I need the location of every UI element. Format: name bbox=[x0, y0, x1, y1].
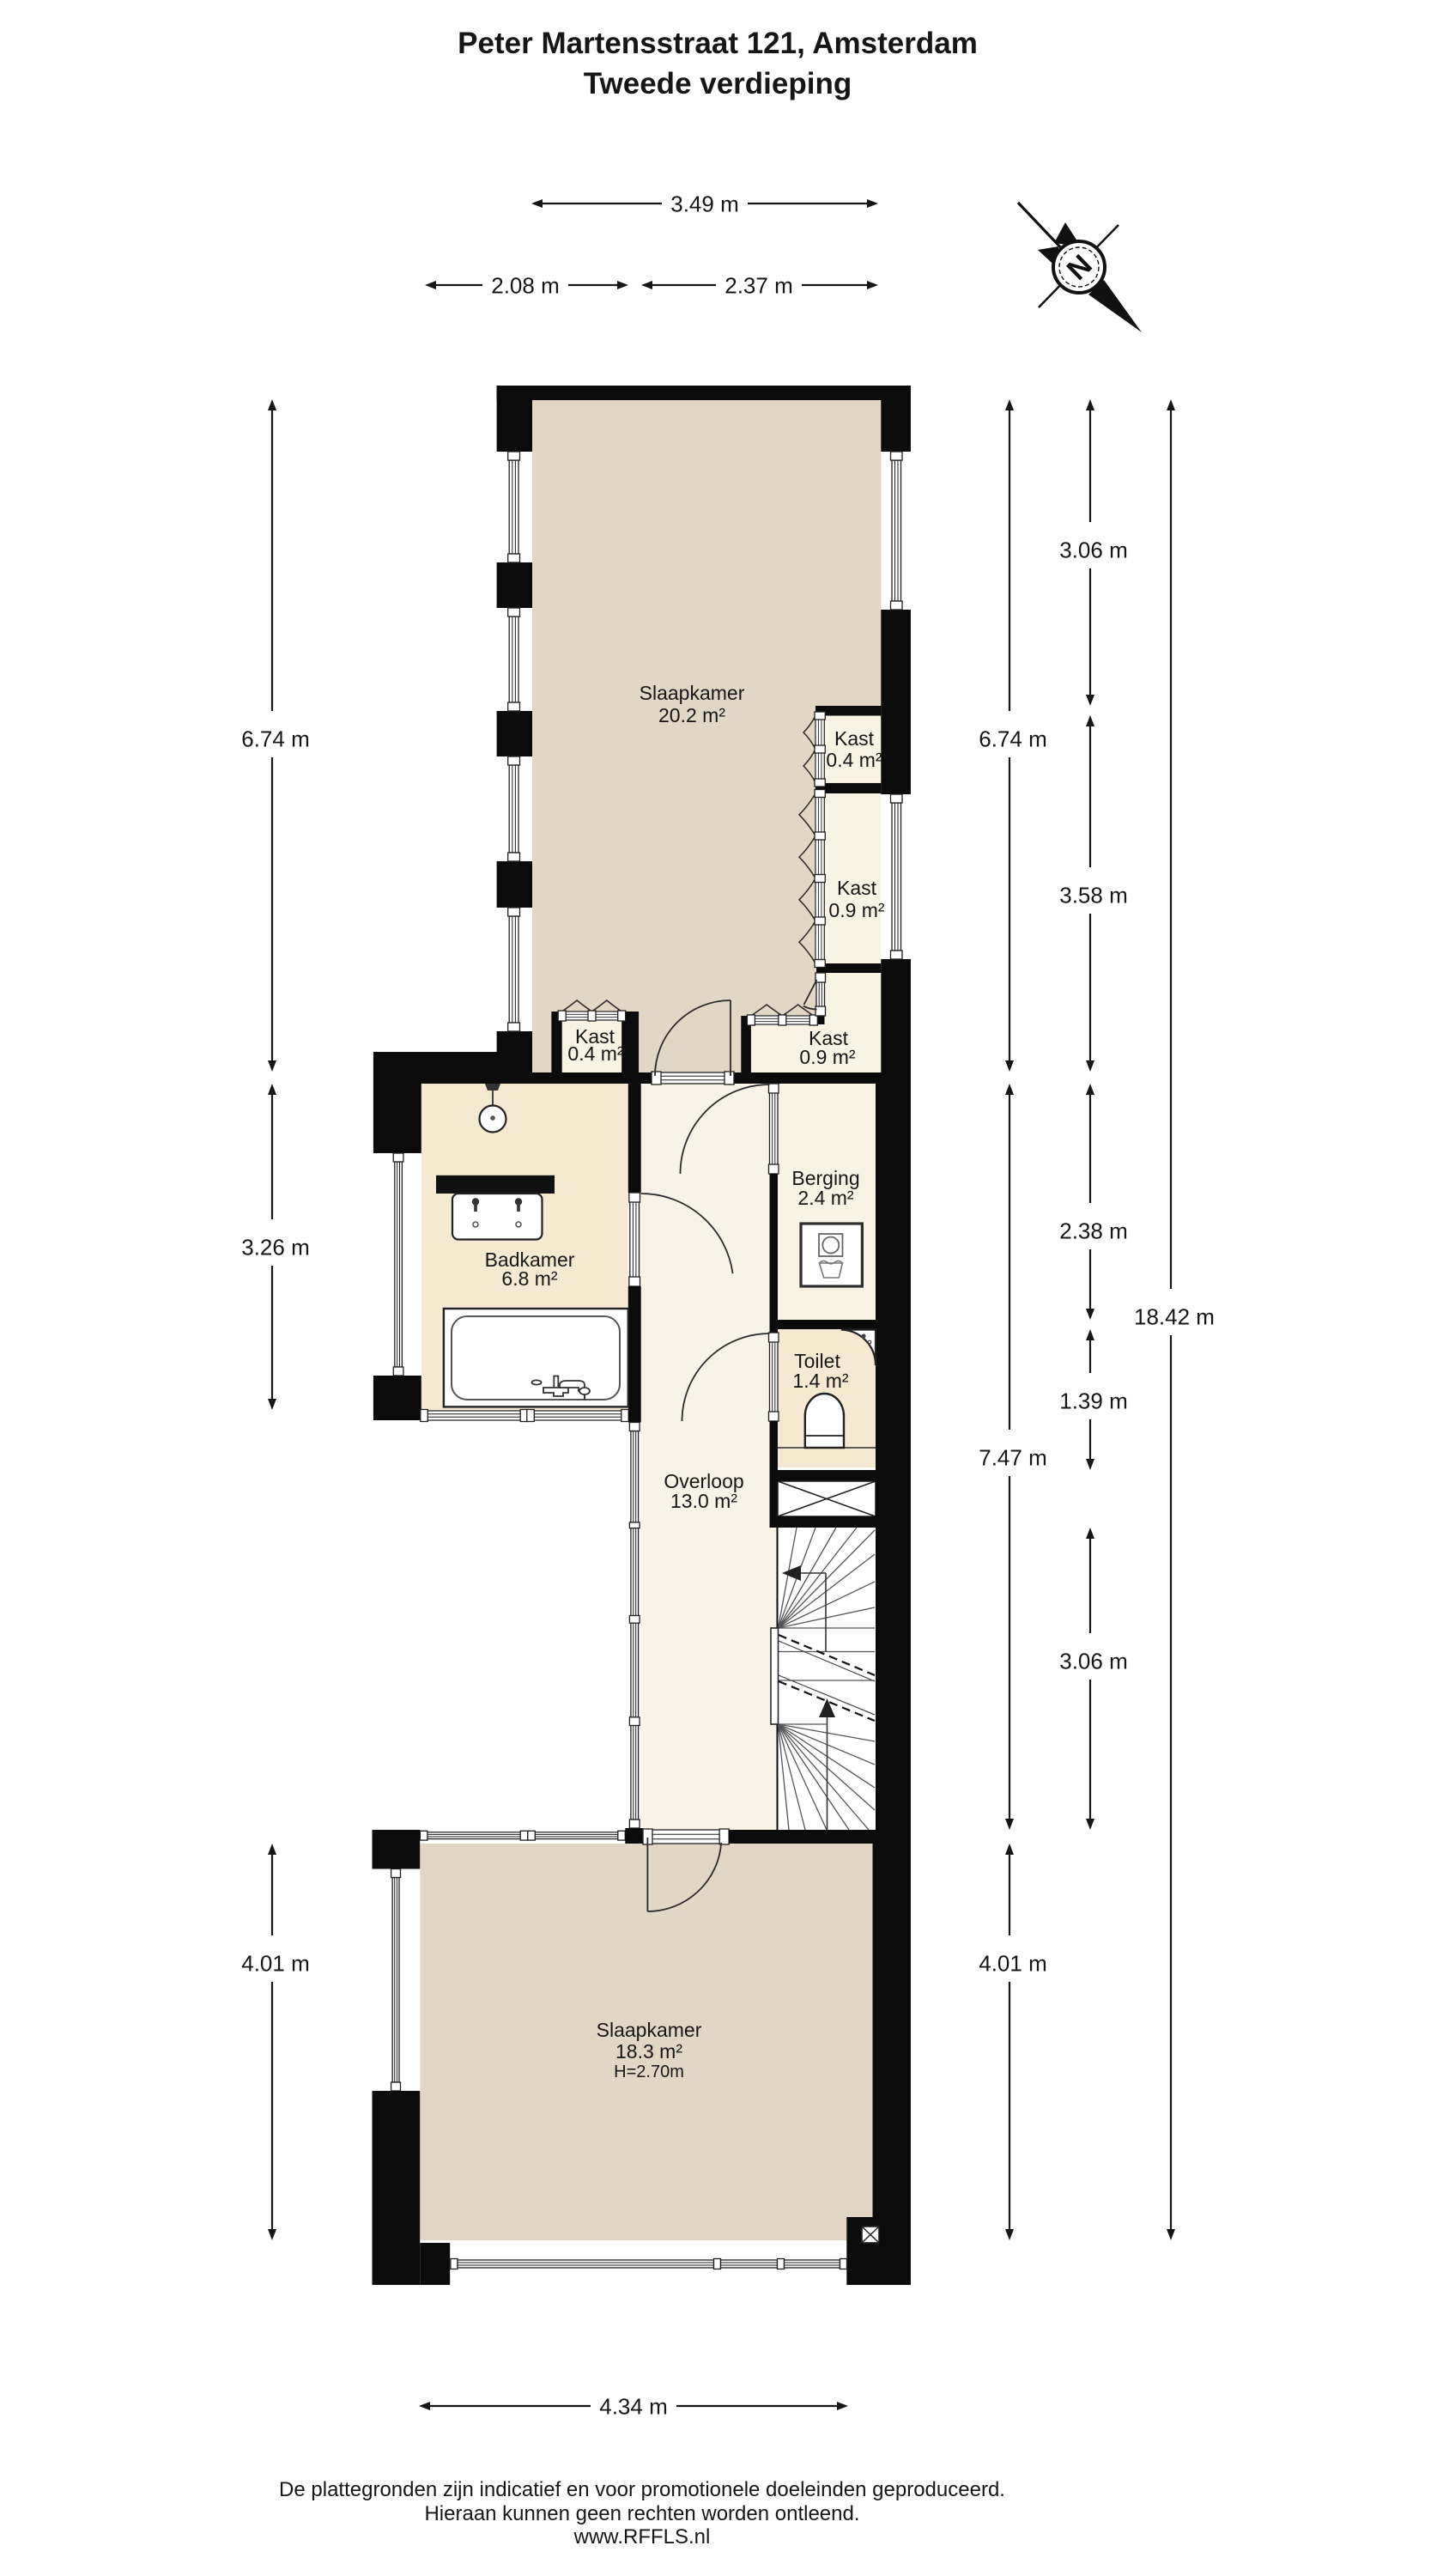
svg-text:4.01 m: 4.01 m bbox=[241, 1950, 310, 1976]
svg-text:1.39 m: 1.39 m bbox=[1059, 1388, 1128, 1413]
svg-text:0.9 m²: 0.9 m² bbox=[828, 899, 885, 921]
svg-text:H=2.70m: H=2.70m bbox=[614, 2063, 684, 2081]
svg-text:Slaapkamer: Slaapkamer bbox=[640, 682, 745, 704]
svg-text:6.8 m²: 6.8 m² bbox=[501, 1267, 558, 1290]
svg-text:Tweede verdieping: Tweede verdieping bbox=[584, 67, 852, 100]
svg-text:www.RFFLS.nl: www.RFFLS.nl bbox=[573, 2525, 711, 2549]
svg-text:20.2 m²: 20.2 m² bbox=[658, 704, 725, 726]
svg-text:6.74 m: 6.74 m bbox=[241, 726, 310, 751]
svg-text:De plattegronden zijn indicati: De plattegronden zijn indicatief en voor… bbox=[279, 2478, 1005, 2501]
svg-text:3.58 m: 3.58 m bbox=[1059, 882, 1128, 908]
svg-text:0.4 m²: 0.4 m² bbox=[567, 1042, 624, 1065]
svg-text:18.42 m: 18.42 m bbox=[1134, 1303, 1215, 1329]
svg-text:2.37 m: 2.37 m bbox=[724, 272, 793, 298]
svg-text:Hieraan kunnen geen rechten wo: Hieraan kunnen geen rechten worden ontle… bbox=[424, 2502, 859, 2525]
svg-text:1.4 m²: 1.4 m² bbox=[792, 1370, 849, 1392]
svg-text:2.08 m: 2.08 m bbox=[491, 272, 560, 298]
svg-text:18.3 m²: 18.3 m² bbox=[615, 2040, 682, 2063]
svg-text:13.0 m²: 13.0 m² bbox=[670, 1490, 737, 1512]
svg-text:Kast: Kast bbox=[834, 727, 875, 750]
svg-text:0.9 m²: 0.9 m² bbox=[799, 1046, 856, 1068]
svg-text:4.01 m: 4.01 m bbox=[979, 1950, 1047, 1976]
svg-text:Slaapkamer: Slaapkamer bbox=[597, 2019, 702, 2041]
svg-text:6.74 m: 6.74 m bbox=[979, 726, 1047, 751]
svg-text:Peter Martensstraat 121, Amste: Peter Martensstraat 121, Amsterdam bbox=[458, 27, 978, 60]
svg-text:2.4 m²: 2.4 m² bbox=[797, 1187, 854, 1209]
svg-text:3.06 m: 3.06 m bbox=[1059, 1648, 1128, 1674]
svg-text:0.4 m²: 0.4 m² bbox=[826, 749, 882, 771]
svg-text:Kast: Kast bbox=[837, 877, 877, 899]
svg-text:3.26 m: 3.26 m bbox=[241, 1234, 310, 1260]
svg-text:7.47 m: 7.47 m bbox=[979, 1444, 1047, 1470]
svg-text:4.34 m: 4.34 m bbox=[599, 2393, 668, 2419]
svg-text:3.49 m: 3.49 m bbox=[670, 191, 739, 216]
svg-text:3.06 m: 3.06 m bbox=[1059, 537, 1128, 562]
svg-text:2.38 m: 2.38 m bbox=[1059, 1218, 1128, 1243]
